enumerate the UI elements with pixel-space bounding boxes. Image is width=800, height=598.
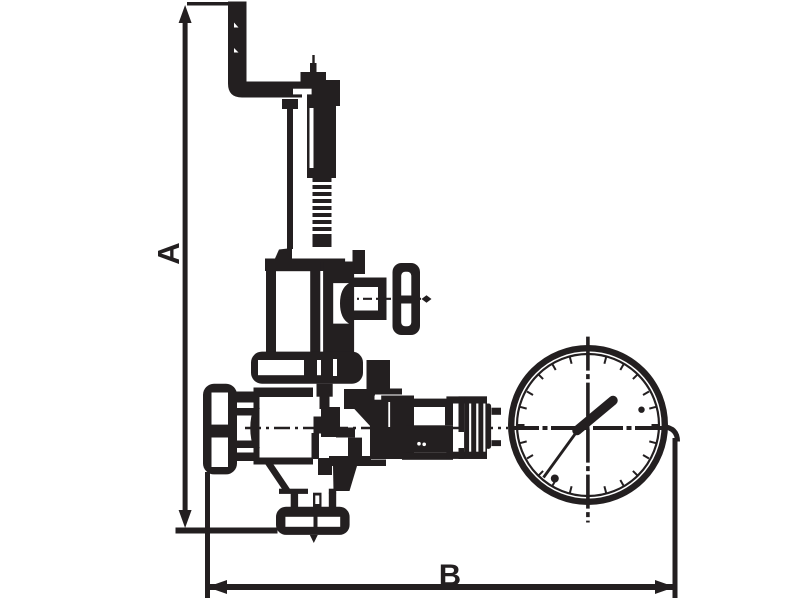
svg-text:A: A [151, 242, 186, 264]
svg-text:B: B [439, 558, 461, 593]
